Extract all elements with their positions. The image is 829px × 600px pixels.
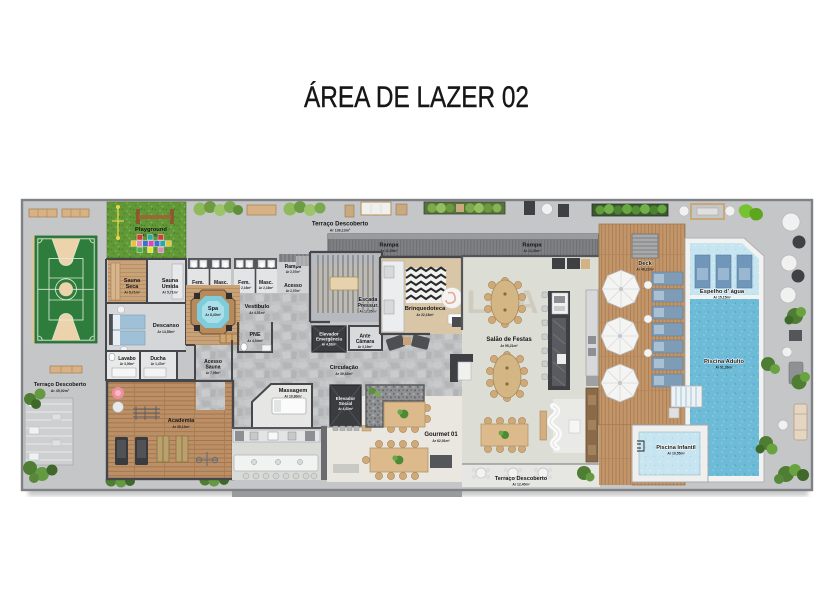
svg-text:PNE: PNE xyxy=(249,332,260,338)
svg-text:Ar 4,54m²: Ar 4,54m² xyxy=(247,339,263,343)
svg-text:Umida: Umida xyxy=(162,284,179,290)
svg-text:ÁREA DE LAZER 02: ÁREA DE LAZER 02 xyxy=(304,81,529,114)
svg-text:Terraço Descoberto: Terraço Descoberto xyxy=(495,476,548,482)
svg-text:Ar 2,16m²: Ar 2,16m² xyxy=(259,286,274,290)
svg-text:Pressur.: Pressur. xyxy=(357,303,379,309)
svg-text:Ar 3,19m²: Ar 3,19m² xyxy=(358,345,373,349)
svg-text:Brinquedoteca: Brinquedoteca xyxy=(405,306,446,312)
svg-text:Espelho d' água: Espelho d' água xyxy=(700,289,745,295)
svg-text:Ar 38,13m²: Ar 38,13m² xyxy=(172,425,190,429)
svg-text:Ar 4,62m²: Ar 4,62m² xyxy=(338,407,353,411)
svg-text:Ar 14,55m²: Ar 14,55m² xyxy=(157,330,175,334)
svg-text:Academia: Academia xyxy=(168,418,195,424)
svg-text:Piscina Adulto: Piscina Adulto xyxy=(704,359,745,365)
svg-text:Ar 2,07m²: Ar 2,07m² xyxy=(286,289,301,293)
svg-text:Ar 4,51m²: Ar 4,51m² xyxy=(249,311,265,315)
svg-text:Spa: Spa xyxy=(208,306,219,312)
svg-text:Deck: Deck xyxy=(638,261,652,267)
svg-text:Ar 10,55m²: Ar 10,55m² xyxy=(667,452,685,456)
svg-text:Ar 46,22m²: Ar 46,22m² xyxy=(636,268,654,272)
svg-text:Ar 3,00m²: Ar 3,00m² xyxy=(120,362,135,366)
svg-text:Ar 39,62m²: Ar 39,62m² xyxy=(335,372,353,376)
svg-text:Vestibulo: Vestibulo xyxy=(245,304,270,310)
svg-text:Piscina Infantil: Piscina Infantil xyxy=(656,445,696,451)
svg-text:Ar 2,07m²: Ar 2,07m² xyxy=(286,270,301,274)
svg-text:Descanso: Descanso xyxy=(153,323,180,329)
svg-text:Massagem: Massagem xyxy=(279,388,308,394)
svg-text:Ar 5,71m²: Ar 5,71m² xyxy=(162,291,178,295)
svg-text:Ar 15,15m²: Ar 15,15m² xyxy=(713,296,731,300)
svg-text:Ar 62,91m²: Ar 62,91m² xyxy=(432,439,450,443)
svg-text:Ar 45,92m²: Ar 45,92m² xyxy=(51,389,70,393)
svg-text:Rampa: Rampa xyxy=(522,243,542,249)
svg-text:Ar 136,13m²: Ar 136,13m² xyxy=(330,229,351,233)
svg-text:Ar 8,40m²: Ar 8,40m² xyxy=(205,313,221,317)
svg-text:Ar 4,62m²: Ar 4,62m² xyxy=(322,343,337,347)
svg-text:Ar 1,47m²: Ar 1,47m² xyxy=(151,362,166,366)
svg-text:Social: Social xyxy=(339,401,353,406)
svg-text:Ar 5,71m²: Ar 5,71m² xyxy=(124,291,140,295)
svg-text:Seca: Seca xyxy=(126,284,140,290)
svg-text:Sauna: Sauna xyxy=(205,365,220,371)
svg-text:Ar 7,05m²: Ar 7,05m² xyxy=(206,371,221,375)
svg-text:Rampa: Rampa xyxy=(379,243,399,249)
svg-text:Playground: Playground xyxy=(135,227,167,233)
svg-text:Ar 22,16m²: Ar 22,16m² xyxy=(416,313,434,317)
svg-text:Ar 10,80m²: Ar 10,80m² xyxy=(284,395,302,399)
svg-text:Gourmet 01: Gourmet 01 xyxy=(424,432,458,438)
svg-text:Ar 11,05m²: Ar 11,05m² xyxy=(523,249,541,253)
svg-text:Ar 95,21m²: Ar 95,21m² xyxy=(500,344,518,348)
svg-text:Salão de Festas: Salão de Festas xyxy=(486,337,532,343)
svg-text:Terraço Descoberto: Terraço Descoberto xyxy=(34,382,87,388)
svg-text:Ar 12,40m²: Ar 12,40m² xyxy=(512,483,530,487)
svg-text:Ar 51,26m²: Ar 51,26m² xyxy=(715,366,733,370)
svg-text:Terraço Descoberto: Terraço Descoberto xyxy=(312,222,369,228)
svg-text:Emergência: Emergência xyxy=(316,337,342,342)
svg-text:Ar 12,35m²: Ar 12,35m² xyxy=(359,310,377,314)
svg-text:Circulação: Circulação xyxy=(330,365,359,371)
svg-text:Ar 11,05m²: Ar 11,05m² xyxy=(380,249,398,253)
